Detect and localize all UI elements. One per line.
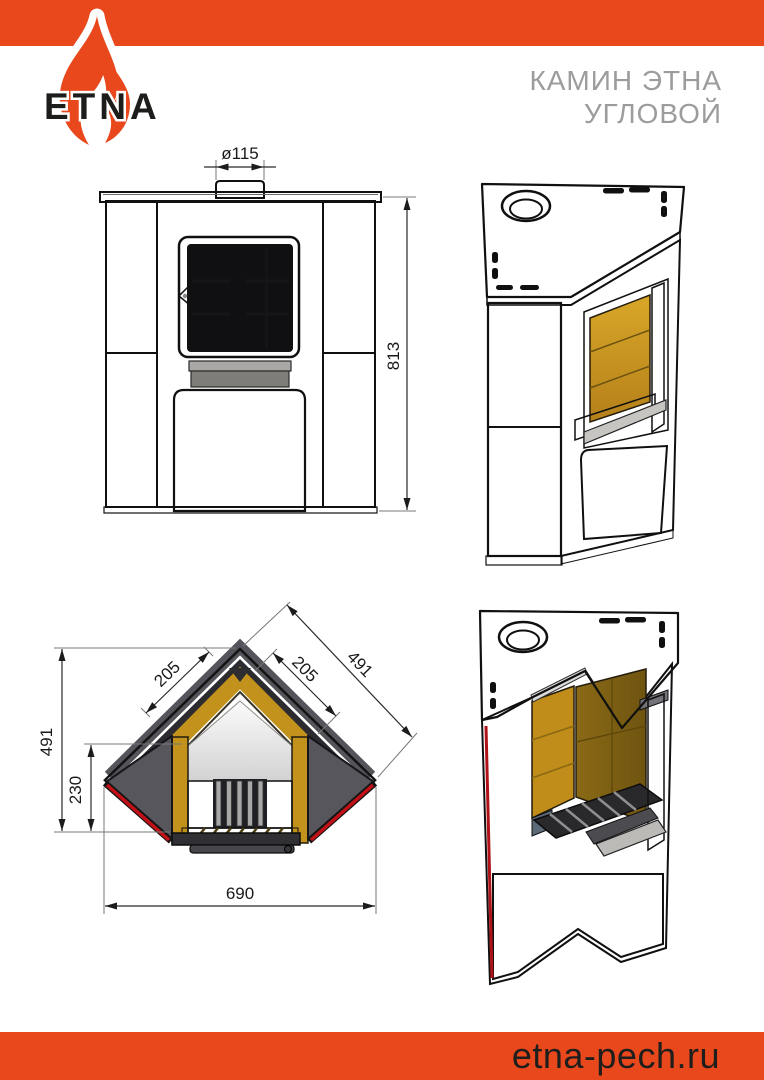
front-view-drawing: ø115 813 — [100, 144, 416, 513]
handle-strip-upper — [189, 361, 291, 371]
dimension-label: 230 — [66, 776, 85, 804]
dimension-label: 205 — [288, 652, 321, 685]
dimension-label: 690 — [226, 884, 254, 903]
plan-view-drawing: 491 230 690 — [37, 602, 417, 914]
red-panel-left — [106, 201, 157, 507]
dimension-label: 491 — [37, 728, 56, 756]
top-plate — [482, 184, 684, 297]
chimney-collar — [499, 622, 547, 652]
lower-front-panel — [581, 446, 667, 539]
cutaway-3d-view-drawing — [480, 611, 678, 984]
brick-column-left — [172, 737, 188, 843]
lower-panel — [174, 390, 305, 511]
brand-logo: ETNA — [44, 16, 161, 145]
dimension-label: 205 — [150, 657, 184, 690]
chimney-pipe — [216, 181, 264, 198]
glass-door — [179, 237, 299, 357]
spec-sheet-page: КАМИН ЭТНА УГЛОВОЙ etna-pech.ru — [0, 0, 764, 1080]
dimension-label: 813 — [384, 342, 403, 370]
base — [486, 556, 562, 565]
vent-slots — [492, 187, 667, 290]
handle-strip-lower — [191, 371, 289, 387]
firebrick-wall-left — [532, 686, 574, 818]
door-handle — [190, 845, 294, 853]
dimension-chimney-diameter: ø115 — [204, 144, 276, 180]
red-panel-right — [323, 201, 375, 507]
side-3d-view-drawing — [482, 184, 684, 565]
lower-front-panel — [493, 874, 663, 979]
dimension-label: ø115 — [221, 144, 259, 163]
brick-column-right — [292, 737, 308, 843]
chimney-collar — [502, 191, 550, 221]
door-front-edge — [172, 833, 300, 845]
red-side-panel — [488, 303, 561, 556]
firebrick-wall — [590, 295, 650, 422]
logo-text: ETNA — [44, 86, 161, 127]
technical-drawings: ETNA — [0, 0, 764, 1080]
dimension-height: 813 — [379, 197, 416, 511]
dimension-label: 491 — [343, 647, 376, 681]
